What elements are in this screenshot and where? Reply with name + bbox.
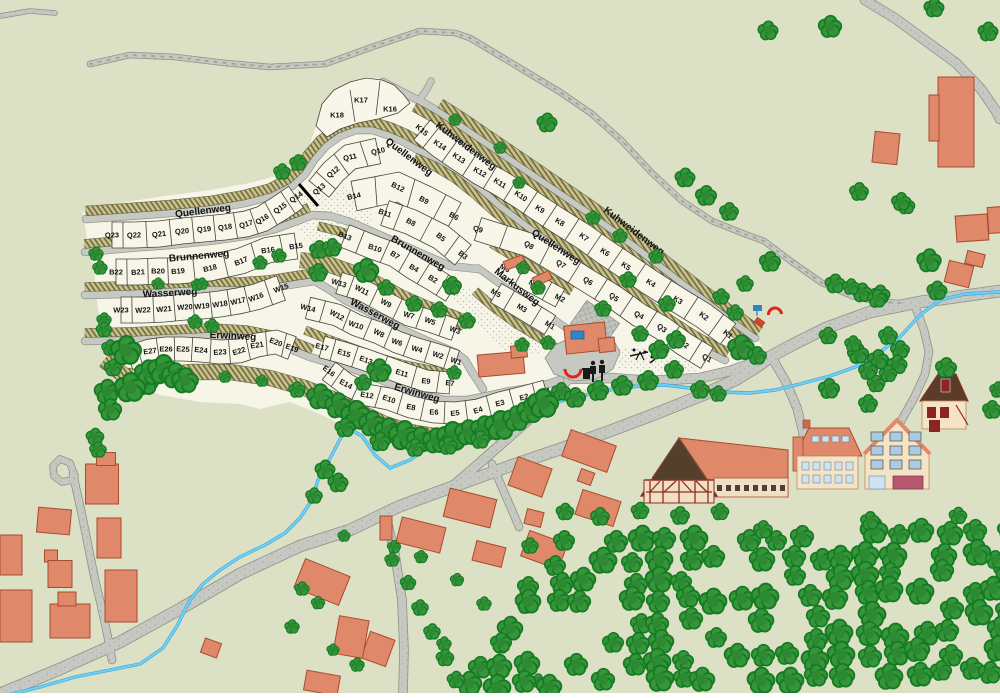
svg-text:E8: E8: [406, 402, 417, 413]
svg-text:Q21: Q21: [151, 229, 166, 240]
svg-text:Q20: Q20: [175, 226, 190, 236]
svg-text:B21: B21: [131, 267, 145, 277]
svg-text:W20: W20: [177, 302, 193, 312]
svg-text:E26: E26: [159, 345, 172, 354]
svg-text:W21: W21: [156, 304, 172, 314]
svg-text:W22: W22: [135, 305, 151, 315]
svg-text:Q22: Q22: [127, 230, 141, 239]
svg-text:E9: E9: [421, 376, 431, 386]
svg-text:B20: B20: [151, 267, 165, 276]
svg-text:B19: B19: [171, 266, 185, 276]
svg-text:B15: B15: [289, 241, 304, 252]
svg-text:B22: B22: [109, 268, 123, 277]
svg-text:E5: E5: [450, 408, 460, 418]
svg-text:E24: E24: [194, 345, 209, 355]
svg-text:E6: E6: [429, 407, 439, 416]
svg-text:E25: E25: [176, 344, 190, 354]
svg-text:K17: K17: [354, 96, 368, 105]
svg-text:E27: E27: [143, 346, 157, 357]
svg-text:Q19: Q19: [197, 224, 212, 234]
svg-text:K16: K16: [383, 105, 397, 114]
svg-text:E23: E23: [213, 347, 227, 357]
svg-text:W19: W19: [194, 301, 210, 312]
svg-text:W23: W23: [113, 306, 128, 315]
svg-text:K18: K18: [330, 111, 344, 120]
svg-text:Q23: Q23: [105, 231, 119, 240]
